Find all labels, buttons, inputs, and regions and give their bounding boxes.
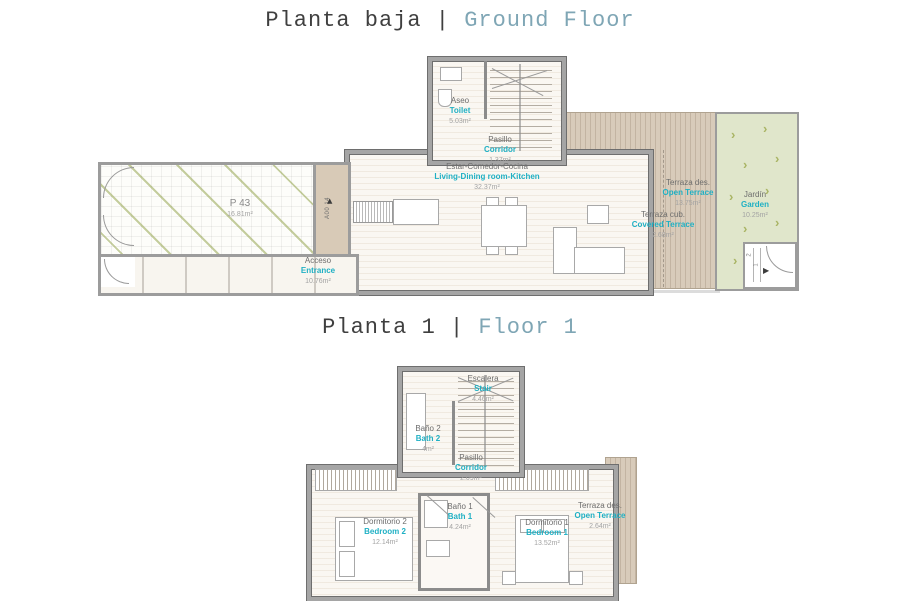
room-name-es: Aseo	[449, 96, 471, 106]
room-name-es: Acceso	[301, 256, 335, 266]
room-label-entrance: Acceso Entrance 10.76m²	[301, 256, 335, 286]
chair	[505, 246, 518, 255]
nightstand	[502, 571, 516, 585]
floorplan-page: { "colors": { "accent_teal": "#1fb0c4", …	[0, 0, 900, 600]
room-name-es: Pasillo	[484, 135, 516, 145]
entry-bay: A00 14 ▶	[310, 162, 351, 260]
room-name-en: Garden	[741, 200, 769, 210]
garden-chevron-icon: ›	[743, 222, 747, 235]
room-area: 4.24m²	[447, 523, 472, 532]
floor-1-plan: Escalera Stair 4.46m² Baño 2 Bath 2 4m² …	[307, 365, 640, 597]
room-area: 2.68m²	[632, 231, 695, 240]
room-label-open-terrace-gf: Terraza des. Open Terrace 13.75m²	[663, 178, 714, 208]
room-area: 4m²	[415, 445, 440, 454]
room-name-en: Corridor	[455, 463, 487, 473]
room-name-en: Stair	[467, 384, 498, 394]
room-name-en: Bath 2	[415, 434, 440, 444]
room-name-en: Bedroom 2	[363, 527, 407, 537]
room-name-es: Escalera	[467, 374, 498, 384]
coffee-table	[587, 205, 609, 224]
door-arc-icon	[103, 167, 134, 198]
garden-chevron-icon: ›	[729, 190, 733, 203]
room-name-es: Dormitorio 1	[525, 518, 569, 528]
garden-step-number: 2	[747, 253, 753, 256]
partition-wall	[484, 61, 487, 119]
pillow	[339, 521, 355, 547]
room-name-en: Toilet	[449, 106, 471, 116]
room-label-stair: Escalera Stair 4.46m²	[467, 374, 498, 404]
pillow	[339, 551, 355, 577]
room-name-en: Corridor	[484, 145, 516, 155]
title-divider: |	[436, 8, 464, 33]
garden-chevron-icon: ›	[775, 216, 779, 229]
floor-1-title: Planta 1 | Floor 1	[0, 315, 900, 340]
room-area: 10.76m²	[301, 277, 335, 286]
room-area: 2.09m²	[455, 474, 487, 483]
room-name-en: Open Terrace	[575, 511, 626, 521]
room-name-es: P 43	[227, 197, 253, 210]
room-name-es: Terraza des.	[575, 501, 626, 511]
room-name-en: Entrance	[301, 266, 335, 276]
room-name-es: Dormitorio 2	[363, 517, 407, 527]
closet-bedroom-2	[315, 469, 397, 491]
room-name-en: Bedroom 1	[525, 528, 569, 538]
room-area: 13.75m²	[663, 199, 714, 208]
parking-area	[98, 162, 316, 260]
room-label-open-terrace-f1: Terraza des. Open Terrace 2.64m²	[575, 501, 626, 531]
room-area: 5.03m²	[449, 117, 471, 126]
dining-table	[481, 205, 527, 247]
room-name-es: Pasillo	[455, 453, 487, 463]
room-name-es: Baño 1	[447, 502, 472, 512]
sink	[440, 67, 462, 81]
chair	[486, 246, 499, 255]
room-label-corridor-gf: Pasillo Corridor 1.37m²	[484, 135, 516, 165]
garden-step-number: 1	[754, 263, 760, 266]
room-area: 16.81m²	[227, 210, 253, 219]
room-label-covered-terrace: Terraza cub. Covered Terrace 2.68m²	[632, 210, 695, 240]
stair-stringer	[519, 64, 521, 151]
entry-door-zone	[101, 257, 135, 287]
room-area: 32.37m²	[434, 183, 539, 192]
room-label-toilet: Aseo Toilet 5.03m²	[449, 96, 471, 126]
room-label-bedroom-1: Dormitorio 1 Bedroom 1 13.52m²	[525, 518, 569, 548]
kitchen-counter	[393, 199, 439, 225]
garden-entry: 2 1 ▶	[743, 242, 797, 289]
door-arc-icon	[766, 246, 793, 273]
room-name-es: Baño 2	[415, 424, 440, 434]
ground-floor-plan: ››››››››››› 2 1 ▶ A00 14 ▶	[95, 55, 800, 300]
door-arc-icon	[103, 215, 134, 246]
title-divider: |	[450, 315, 478, 340]
room-name-en: Bath 1	[447, 512, 472, 522]
chair	[505, 197, 518, 206]
title-en: Ground Floor	[464, 8, 634, 33]
door-arc-icon	[104, 259, 129, 284]
entry-arrow-icon: ▶	[763, 266, 769, 275]
nightstand	[569, 571, 583, 585]
room-name-es: Jardín	[741, 190, 769, 200]
room-area: 4.46m²	[467, 395, 498, 404]
room-label-living: Estar-Comedor-Cocina Living-Dining room-…	[434, 162, 539, 192]
door-tag-arrow-icon: ▶	[326, 198, 334, 203]
stair-winder-line	[492, 68, 544, 96]
title-es: Planta baja	[265, 8, 421, 33]
room-label-bath-1: Baño 1 Bath 1 4.24m²	[447, 502, 472, 532]
room-area: 10.25m²	[741, 211, 769, 220]
room-area: 12.14m²	[363, 538, 407, 547]
ground-floor-title: Planta baja | Ground Floor	[0, 8, 900, 33]
kitchen-sink	[353, 201, 393, 223]
room-area: 2.64m²	[575, 522, 626, 531]
room-label-garden: Jardín Garden 10.25m²	[741, 190, 769, 220]
garden-chevron-icon: ›	[743, 158, 747, 171]
room-area: 13.52m²	[525, 539, 569, 548]
room-name-en: Living-Dining room-Kitchen	[434, 172, 539, 182]
garden-chevron-icon: ›	[775, 152, 779, 165]
washbasin	[426, 540, 450, 557]
room-name-en: Open Terrace	[663, 188, 714, 198]
chair	[486, 197, 499, 206]
title-es: Planta 1	[322, 315, 436, 340]
garden-chevron-icon: ›	[763, 122, 767, 135]
room-name-es: Estar-Comedor-Cocina	[434, 162, 539, 172]
room-label-parking: P 43 16.81m²	[227, 197, 253, 219]
room-name-es: Terraza des.	[663, 178, 714, 188]
room-name-en: Covered Terrace	[632, 220, 695, 230]
garden-chevron-icon: ›	[731, 128, 735, 141]
garden-chevron-icon: ›	[733, 254, 737, 267]
room-label-bedroom-2: Dormitorio 2 Bedroom 2 12.14m²	[363, 517, 407, 547]
room-label-bath-2: Baño 2 Bath 2 4m²	[415, 424, 440, 454]
room-name-es: Terraza cub.	[632, 210, 695, 220]
title-en: Floor 1	[478, 315, 577, 340]
room-label-corridor-f1: Pasillo Corridor 2.09m²	[455, 453, 487, 483]
sofa-section	[574, 247, 625, 274]
step-line	[760, 248, 761, 282]
